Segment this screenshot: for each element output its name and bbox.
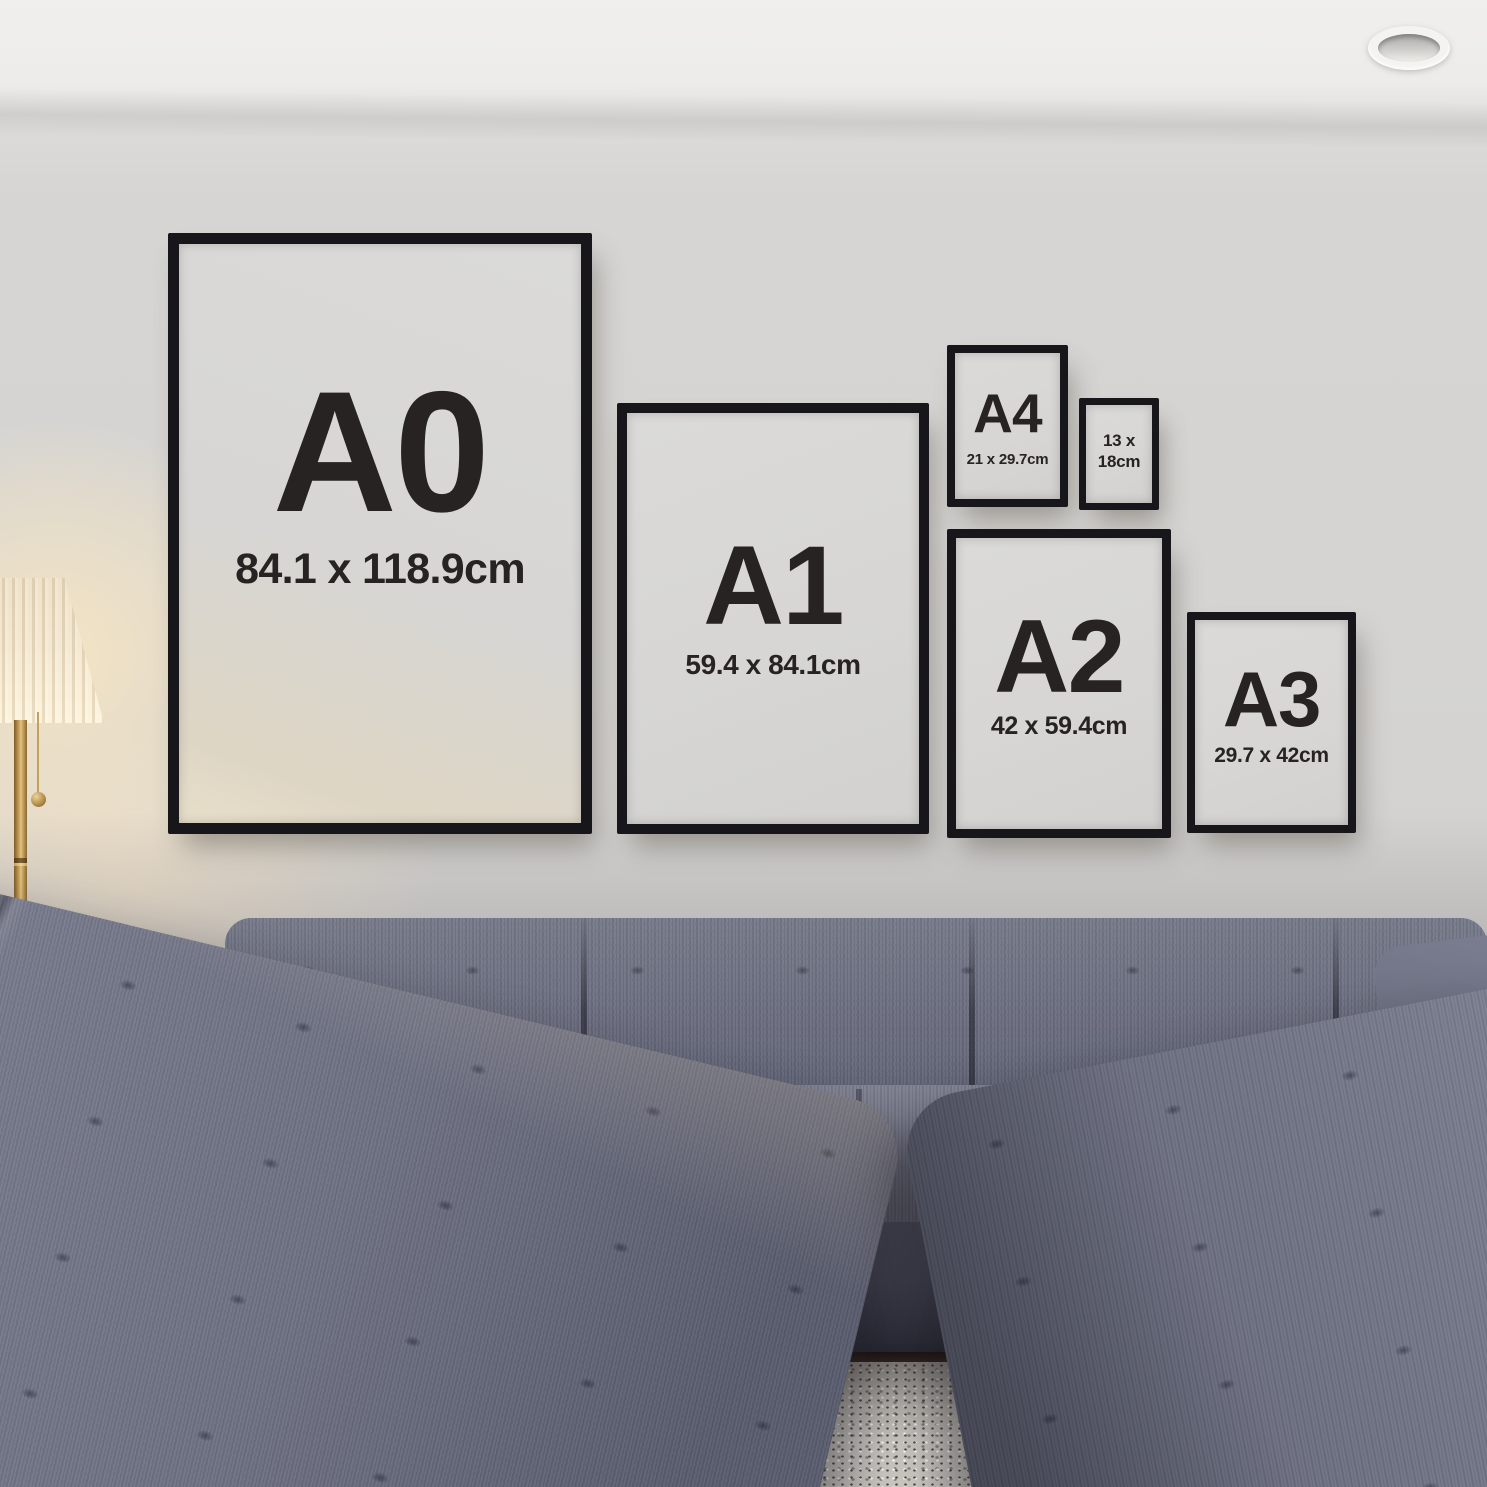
- poster-a2: A2 42 x 59.4cm: [956, 538, 1162, 829]
- poster-a0: A0 84.1 x 118.9cm: [179, 244, 581, 823]
- poster-dimensions-label: 18cm: [1086, 453, 1152, 470]
- recessed-ceiling-light: [1368, 26, 1450, 70]
- recessed-light-inner: [1378, 34, 1440, 62]
- poster-frame-13x18: 13 x 18cm: [1079, 398, 1159, 510]
- poster-dimensions-label: 84.1 x 118.9cm: [179, 548, 581, 591]
- lamp-pull-chain: [37, 712, 39, 794]
- poster-size-label: A0: [179, 366, 581, 538]
- poster-size-label: A1: [627, 530, 919, 642]
- poster-dimensions-label: 59.4 x 84.1cm: [627, 651, 919, 679]
- poster-13x18: 13 x 18cm: [1086, 405, 1152, 503]
- poster-frame-a3: A3 29.7 x 42cm: [1187, 612, 1356, 833]
- poster-size-label: 13 x: [1086, 432, 1152, 449]
- poster-dimensions-label: 42 x 59.4cm: [956, 714, 1162, 739]
- poster-size-label: A3: [1195, 660, 1348, 738]
- living-room-scene: A0 84.1 x 118.9cm A1 59.4 x 84.1cm A4 21…: [0, 0, 1487, 1487]
- poster-frame-a1: A1 59.4 x 84.1cm: [617, 403, 929, 834]
- poster-size-label: A2: [956, 605, 1162, 709]
- lamp-pull-chain-ball: [31, 792, 46, 807]
- poster-dimensions-label: 29.7 x 42cm: [1195, 745, 1348, 766]
- poster-a1: A1 59.4 x 84.1cm: [627, 413, 919, 824]
- poster-a4: A4 21 x 29.7cm: [955, 353, 1060, 499]
- poster-dimensions-label: 21 x 29.7cm: [955, 452, 1060, 467]
- poster-frame-a0: A0 84.1 x 118.9cm: [168, 233, 592, 834]
- poster-frame-a4: A4 21 x 29.7cm: [947, 345, 1068, 507]
- poster-frame-a2: A2 42 x 59.4cm: [947, 529, 1171, 838]
- poster-a3: A3 29.7 x 42cm: [1195, 620, 1348, 825]
- poster-size-label: A4: [955, 386, 1060, 441]
